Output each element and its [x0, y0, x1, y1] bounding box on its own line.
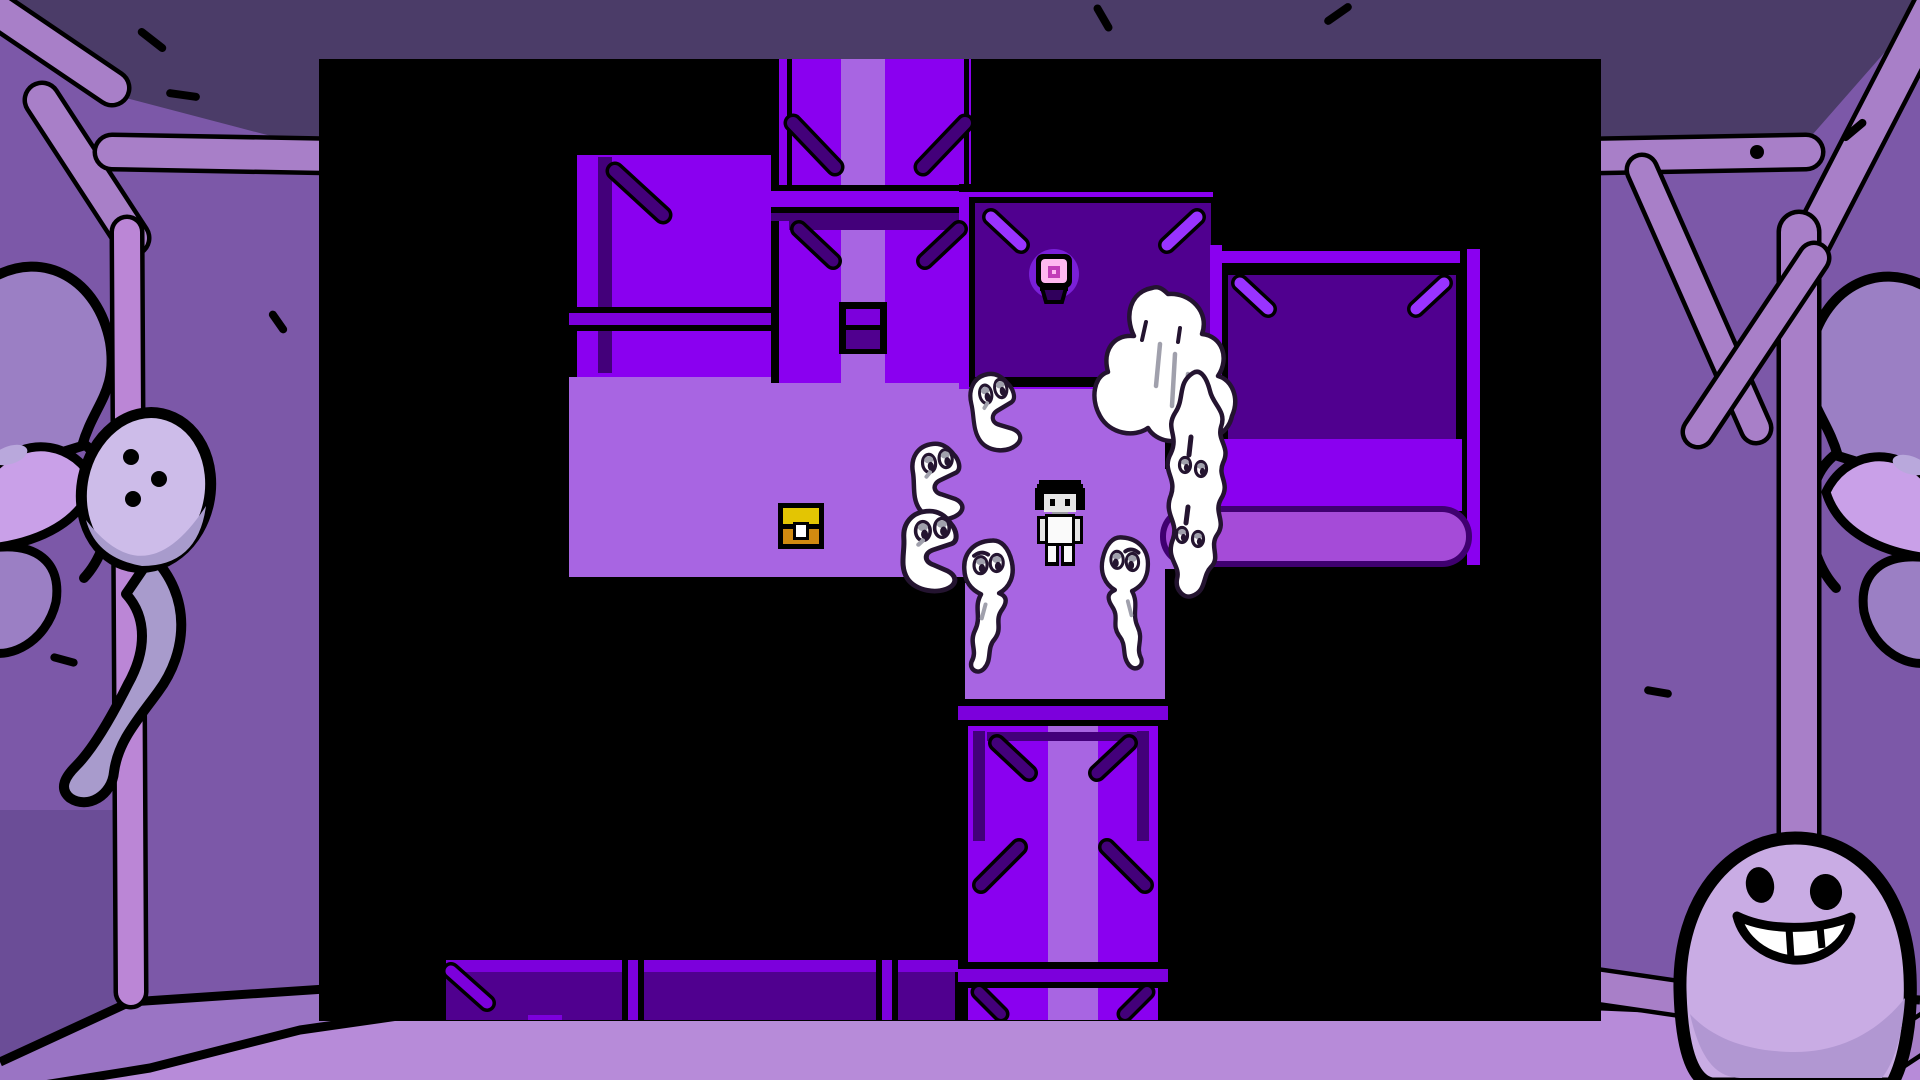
game-screen [0, 0, 1920, 1080]
game-viewport[interactable] [319, 59, 1601, 1021]
ink-mark [54, 657, 73, 662]
egg-ghost-decoration [1680, 838, 1910, 1080]
ghost-face-dot [151, 471, 167, 487]
ink-mark [1648, 690, 1668, 693]
game-map [319, 59, 1601, 1021]
ghost-face-dot [123, 449, 139, 465]
beam-knot [1750, 145, 1764, 159]
ink-mark [170, 93, 196, 97]
ghost-face-dot [125, 491, 141, 507]
treasure-chest[interactable] [778, 503, 824, 549]
